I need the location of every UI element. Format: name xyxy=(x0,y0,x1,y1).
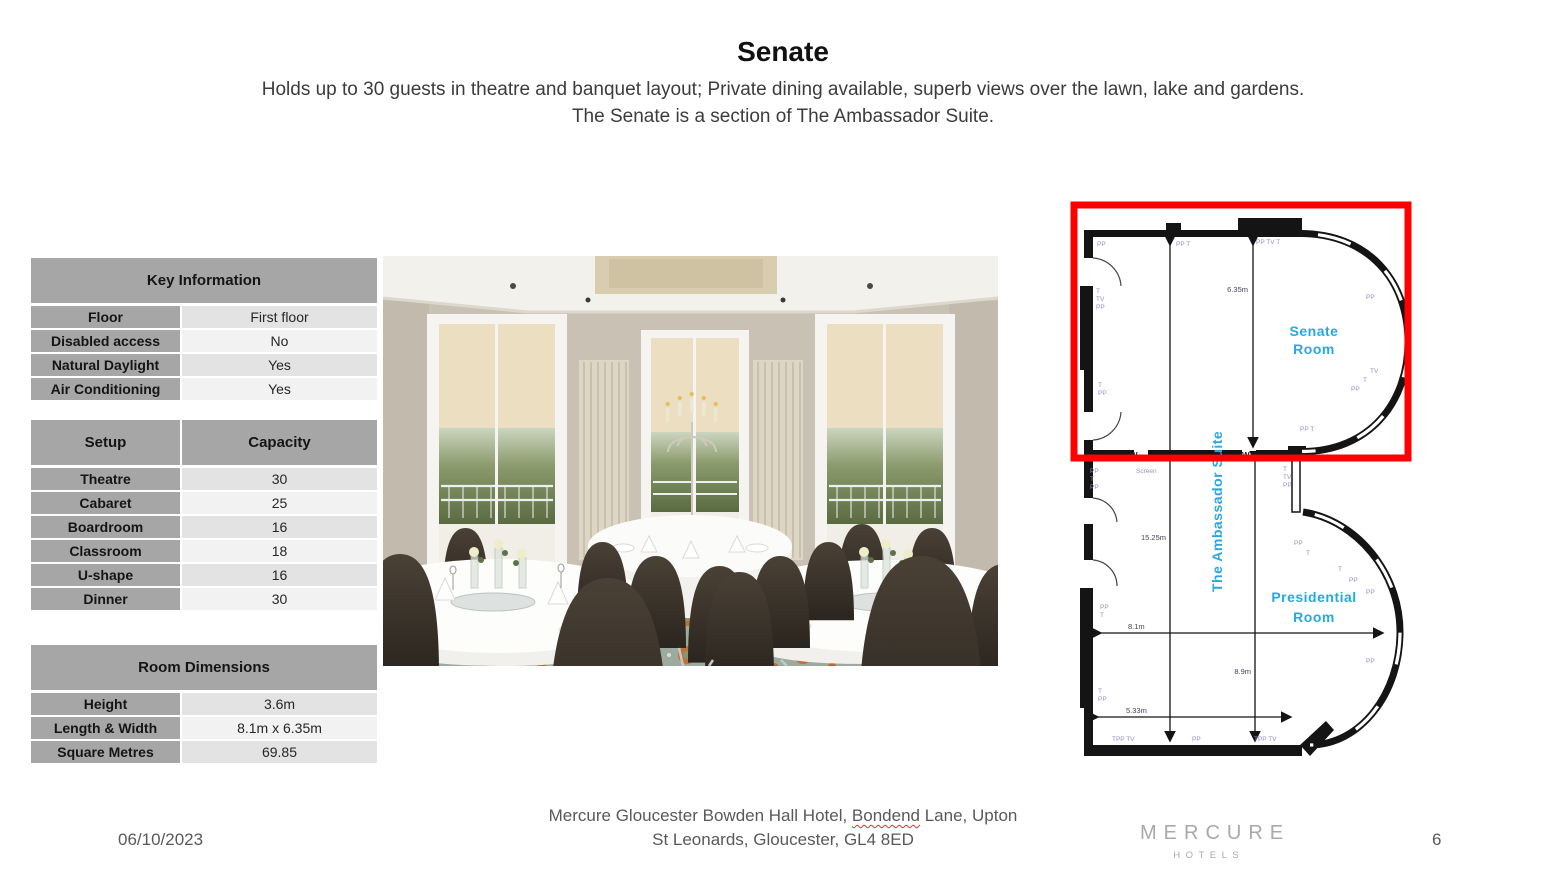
plan-equipment-mark: PP xyxy=(1098,390,1107,397)
presidential-bay-wall xyxy=(1303,512,1400,745)
plan-equipment-mark: PP xyxy=(1351,386,1360,393)
capacity-column-header: Capacity xyxy=(182,420,377,465)
plan-equipment-mark: PP xyxy=(1090,484,1099,491)
row-value: No xyxy=(182,330,377,352)
slide: Senate Holds up to 30 guests in theatre … xyxy=(0,0,1566,876)
plan-equipment-mark: PP xyxy=(1349,577,1358,584)
window-strip xyxy=(1292,456,1300,512)
address-line-1: Mercure Gloucester Bowden Hall Hotel, Bo… xyxy=(420,804,1146,828)
row-value: 3.6m xyxy=(182,693,377,715)
row-value: Yes xyxy=(182,378,377,400)
table-row: Square Metres 69.85 xyxy=(31,741,377,763)
row-label: Natural Daylight xyxy=(31,354,180,376)
table-row: Floor First floor xyxy=(31,306,377,328)
table-row: Cabaret 25 xyxy=(31,492,377,514)
row-label: U-shape xyxy=(31,564,180,586)
row-value: Yes xyxy=(182,354,377,376)
plan-equipment-mark: TPP TV xyxy=(1254,736,1277,743)
table-row: Height 3.6m xyxy=(31,693,377,715)
plan-equipment-mark: T xyxy=(1363,377,1367,384)
row-label: Theatre xyxy=(31,468,180,490)
table-row: Dinner 30 xyxy=(31,588,377,610)
setup-column-header: Setup xyxy=(31,420,180,465)
plan-equipment-mark: TV xyxy=(1283,474,1292,481)
presidential-room-label: Room xyxy=(1293,609,1335,625)
room-photo xyxy=(383,256,998,666)
plan-equipment-mark: T xyxy=(1283,466,1287,473)
plan-equipment-mark: T xyxy=(1098,382,1102,389)
table-row: Air Conditioning Yes xyxy=(31,378,377,400)
dim-presidential-depth: 8.9m xyxy=(1234,667,1251,676)
brand-subtitle: HOTELS xyxy=(1139,850,1280,861)
table-row: Theatre 30 xyxy=(31,468,377,490)
room-dimensions-table: Room Dimensions Height 3.6m Length & Wid… xyxy=(31,645,377,765)
plan-equipment-mark: PP xyxy=(1097,241,1106,248)
plan-equipment-mark: PP xyxy=(1192,736,1201,743)
row-value: First floor xyxy=(182,306,377,328)
dim-senate-depth: 6.35m xyxy=(1227,285,1248,294)
setup-capacity-table: Setup Capacity Theatre 30 Cabaret 25 Boa… xyxy=(31,420,377,612)
mercure-logo: MERCURE HOTELS xyxy=(1133,822,1279,861)
table-row: Length & Width 8.1m x 6.35m xyxy=(31,717,377,739)
row-label: Air Conditioning xyxy=(31,378,180,400)
dim-suite-length: 15.25m xyxy=(1141,533,1166,542)
row-label: Floor xyxy=(31,306,180,328)
senate-room-label: Room xyxy=(1293,341,1335,357)
plan-equipment-mark: PP xyxy=(1366,658,1375,665)
dim-bottom-width: 5.33m xyxy=(1126,706,1147,715)
address-part: Lane, Upton xyxy=(920,806,1017,825)
address-part: Mercure Gloucester Bowden Hall Hotel, xyxy=(549,806,852,825)
row-label: Classroom xyxy=(31,540,180,562)
plan-equipment-mark: T xyxy=(1338,566,1342,573)
row-value: 25 xyxy=(182,492,377,514)
subtitle-line-1: Holds up to 30 guests in theatre and ban… xyxy=(0,76,1566,103)
dimension-arrows xyxy=(1097,244,1382,740)
plan-equipment-mark: T xyxy=(1090,476,1094,483)
row-label: Disabled access xyxy=(31,330,180,352)
subtitle-line-2: The Senate is a section of The Ambassado… xyxy=(0,103,1566,130)
table-row: Natural Daylight Yes xyxy=(31,354,377,376)
row-value: 18 xyxy=(182,540,377,562)
senate-room-label: Senate xyxy=(1290,323,1339,339)
row-label: Square Metres xyxy=(31,741,180,763)
floor-plan-svg: 6.35m 15.25m 8.9m 8.1m 5.33m W W Senate … xyxy=(1070,200,1412,772)
plan-equipment-mark: PP xyxy=(1096,304,1105,311)
plan-equipment-mark: PP xyxy=(1366,589,1375,596)
row-value: 16 xyxy=(182,516,377,538)
row-value: 30 xyxy=(182,468,377,490)
footer-date: 06/10/2023 xyxy=(118,830,203,850)
address-part-misspelled: Bondend xyxy=(852,806,920,825)
row-value: 69.85 xyxy=(182,741,377,763)
plan-equipment-mark: TV xyxy=(1096,296,1105,303)
setup-capacity-header: Setup Capacity xyxy=(31,420,377,465)
plan-equipment-mark: T xyxy=(1100,612,1104,619)
brand-name: MERCURE xyxy=(1140,822,1279,845)
table-row: Disabled access No xyxy=(31,330,377,352)
row-label: Cabaret xyxy=(31,492,180,514)
page-subtitle: Holds up to 30 guests in theatre and ban… xyxy=(0,76,1566,130)
row-value: 8.1m x 6.35m xyxy=(182,717,377,739)
plan-equipment-mark: TV xyxy=(1370,368,1379,375)
plan-equipment-mark: PP T xyxy=(1300,426,1314,433)
senate-highlight-box xyxy=(1074,205,1408,458)
dim-width: 8.1m xyxy=(1128,622,1145,631)
plan-equipment-mark: PP xyxy=(1294,540,1303,547)
table-row: Classroom 18 xyxy=(31,540,377,562)
plan-equipment-mark: TPP TV xyxy=(1112,736,1135,743)
table-row: U-shape 16 xyxy=(31,564,377,586)
plan-equipment-mark: T xyxy=(1098,688,1102,695)
plan-equipment-mark: PP xyxy=(1366,294,1375,301)
footer-address: Mercure Gloucester Bowden Hall Hotel, Bo… xyxy=(420,804,1146,852)
plan-equipment-mark: PP T xyxy=(1176,241,1190,248)
address-line-2: St Leonards, Gloucester, GL4 8ED xyxy=(420,828,1146,852)
key-information-header: Key Information xyxy=(31,258,377,303)
key-information-table: Key Information Floor First floor Disabl… xyxy=(31,258,377,402)
table-row: Boardroom 16 xyxy=(31,516,377,538)
row-value: 16 xyxy=(182,564,377,586)
page-number: 6 xyxy=(1432,830,1441,850)
row-label: Boardroom xyxy=(31,516,180,538)
plan-equipment-mark: PP TV T xyxy=(1256,239,1280,246)
row-value: 30 xyxy=(182,588,377,610)
presidential-room-label: Presidential xyxy=(1271,589,1356,605)
plan-equipment-mark: PP xyxy=(1090,468,1099,475)
plan-equipment-mark: T xyxy=(1306,550,1310,557)
plan-equipment-mark: Screen xyxy=(1136,468,1157,475)
page-title: Senate xyxy=(0,36,1566,68)
plan-equipment-mark: PP xyxy=(1098,696,1107,703)
plan-equipment-mark: PP xyxy=(1283,482,1292,489)
plan-equipment-mark: T xyxy=(1096,288,1100,295)
room-dimensions-header: Room Dimensions xyxy=(31,645,377,690)
row-label: Length & Width xyxy=(31,717,180,739)
plan-equipment-mark: PP xyxy=(1100,604,1109,611)
row-label: Height xyxy=(31,693,180,715)
row-label: Dinner xyxy=(31,588,180,610)
